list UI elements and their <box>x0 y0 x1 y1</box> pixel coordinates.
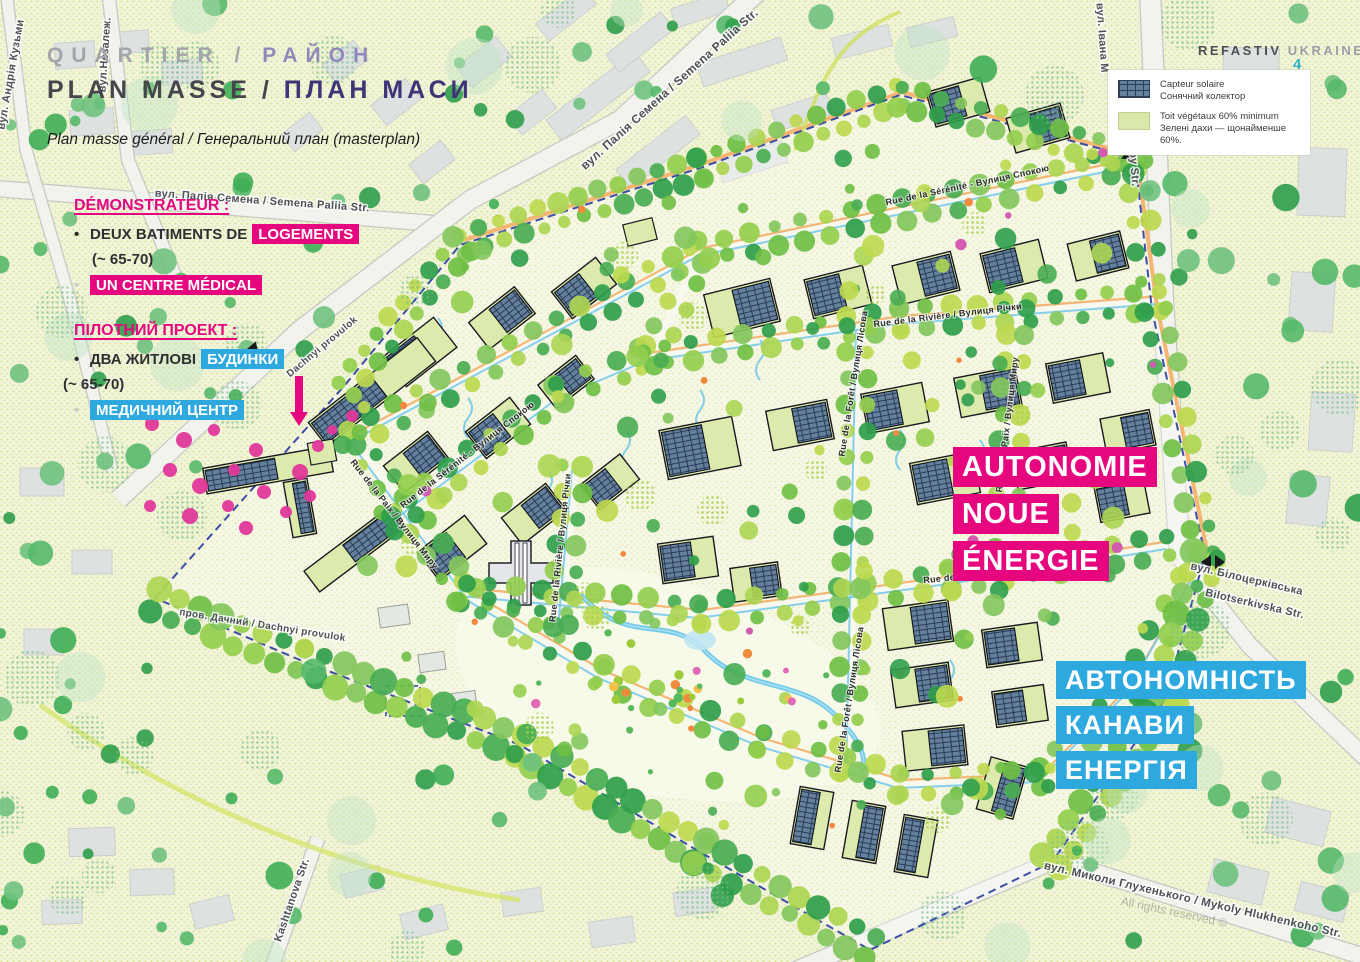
tree <box>768 235 789 256</box>
highlight-logements: LOGEMENTS <box>252 224 359 244</box>
planting-dot <box>609 682 619 692</box>
tree <box>684 335 698 349</box>
flowering-tree <box>192 478 208 494</box>
tree <box>647 519 660 532</box>
tree <box>418 908 433 923</box>
page-title: PLAN MASSE / ПЛАН МАСИ <box>47 76 473 105</box>
tree <box>1041 779 1055 793</box>
tree <box>740 884 761 905</box>
planting-dot <box>823 672 829 678</box>
flowering-tree <box>312 440 324 452</box>
tree <box>419 394 437 412</box>
tree <box>446 939 462 955</box>
bullet-icon: • <box>74 277 90 294</box>
tree <box>744 785 767 808</box>
tree <box>1105 358 1114 367</box>
tree <box>673 174 695 196</box>
tree <box>921 786 936 801</box>
tree <box>1073 126 1086 139</box>
tree-canopy <box>4 650 61 707</box>
tree <box>999 188 1020 209</box>
tree-canopy <box>894 25 950 81</box>
planting-dot <box>604 629 611 636</box>
tree <box>750 611 764 625</box>
building <box>992 685 1049 728</box>
tree <box>833 525 854 546</box>
masterplan-page: вул. Палія Семена / Semena Paliia Str.ву… <box>0 0 1360 962</box>
tree <box>1161 326 1179 344</box>
tree-canopy <box>48 877 86 915</box>
tree <box>549 311 565 327</box>
tree <box>386 696 408 718</box>
tree-canopy <box>78 437 133 492</box>
tree <box>1135 276 1147 288</box>
tree <box>1047 159 1065 177</box>
tree <box>649 680 665 696</box>
tree <box>569 566 583 580</box>
legend-item-green-roof: Toit végétaux 60% minimumЗелені дахи — щ… <box>1118 111 1300 147</box>
tree <box>474 460 489 475</box>
tree <box>534 605 547 618</box>
tree <box>538 222 550 234</box>
tree <box>799 582 809 592</box>
tree <box>1007 130 1023 146</box>
tree <box>1048 144 1060 156</box>
tree <box>851 199 862 210</box>
tree <box>1092 132 1105 145</box>
tree <box>847 762 868 783</box>
tree <box>1243 373 1269 399</box>
solar-panel-swatch-icon <box>1118 80 1150 98</box>
tree <box>955 379 966 390</box>
tree <box>572 483 592 503</box>
tree <box>737 344 753 360</box>
tree <box>3 512 15 524</box>
tree <box>1151 242 1166 257</box>
callout-line: NOUE <box>953 494 1059 534</box>
tree <box>508 636 519 647</box>
tree <box>1011 107 1031 127</box>
tree <box>965 632 974 641</box>
tree-canopy <box>240 729 281 770</box>
tree <box>933 91 949 107</box>
tree <box>370 424 390 444</box>
tree <box>966 119 985 138</box>
tree <box>726 400 743 417</box>
tree <box>370 668 397 695</box>
tree <box>837 476 852 491</box>
tree <box>1267 273 1280 286</box>
tree <box>961 393 974 406</box>
demonstrator-item-1: • DEUX BATIMENTS DE LOGEMENTS <box>74 224 359 244</box>
tree <box>492 492 512 512</box>
tree <box>14 726 28 740</box>
context-building <box>501 887 544 916</box>
tree <box>716 162 729 175</box>
tree <box>488 365 503 380</box>
tree <box>1327 79 1347 99</box>
tree <box>33 242 47 256</box>
tree <box>146 576 172 602</box>
solar-panel <box>792 402 832 443</box>
tree <box>378 307 397 326</box>
tree <box>768 121 785 138</box>
tree <box>832 631 851 650</box>
tree <box>594 284 611 301</box>
flowering-tree <box>1150 361 1156 367</box>
tree <box>694 721 711 738</box>
tree-canopy <box>962 212 987 237</box>
tree <box>913 582 934 603</box>
tree <box>976 196 992 212</box>
flowering-tree <box>144 500 156 512</box>
tree-canopy <box>115 737 153 775</box>
tree <box>626 345 648 367</box>
title-fr: PLAN MASSE / <box>47 76 284 104</box>
tree <box>1004 782 1020 798</box>
tree <box>883 569 903 589</box>
tree <box>394 320 414 340</box>
solar-panel <box>984 628 1019 665</box>
tree <box>435 487 452 504</box>
highlight-centre-medical: UN CENTRE MÉDICAL <box>90 275 262 295</box>
tree <box>436 573 448 585</box>
tree <box>645 317 662 334</box>
tree <box>995 228 1017 250</box>
flowering-tree <box>304 490 316 502</box>
tree <box>579 364 592 377</box>
tree <box>613 266 630 283</box>
tree <box>834 150 851 167</box>
tree-canopy <box>67 713 104 750</box>
pilot-item-2: (~ 65-70) <box>63 376 284 393</box>
tree <box>776 588 789 601</box>
tree <box>829 657 850 678</box>
tree <box>1312 259 1339 286</box>
tree <box>733 324 753 344</box>
tree <box>955 97 967 109</box>
tree <box>1045 763 1056 774</box>
tree <box>756 149 771 164</box>
tree <box>776 752 794 770</box>
demonstrator-title: DÉMONSTRATEUR : <box>74 197 229 215</box>
tree <box>856 476 870 490</box>
tree <box>1174 381 1192 399</box>
shed <box>378 604 410 628</box>
demonstrator-block: DÉMONSTRATEUR : • DEUX BATIMENTS DE LOGE… <box>74 197 359 302</box>
tree <box>267 769 283 785</box>
flowering-tree <box>222 500 234 512</box>
kicker-uk: РАЙОН <box>262 44 376 67</box>
flowering-tree <box>280 506 292 518</box>
tree <box>794 231 815 252</box>
planting-dot <box>626 727 633 734</box>
tree <box>1014 325 1034 345</box>
tree-canopy <box>804 458 827 481</box>
tree-canopy <box>925 807 951 833</box>
tree <box>1125 932 1142 949</box>
tree <box>661 195 676 210</box>
pilot-block: ПІЛОТНИЙ ПРОЕКТ : • ДВА ЖИТЛОВІ БУДИНКИ … <box>74 322 284 427</box>
tree <box>570 512 585 527</box>
tree <box>597 204 611 218</box>
tree <box>817 337 830 350</box>
tree <box>457 361 471 375</box>
tree <box>653 352 669 368</box>
tree <box>493 616 515 638</box>
tree <box>858 369 877 388</box>
building <box>982 622 1043 667</box>
tree <box>717 589 736 608</box>
title-block: QUARTIER / РАЙОН PLAN MASSE / ПЛАН МАСИ … <box>47 44 473 149</box>
tree <box>683 350 704 371</box>
building <box>882 600 953 651</box>
tree <box>467 731 485 749</box>
tree <box>710 145 722 157</box>
tree <box>793 615 804 626</box>
tree <box>996 324 1017 345</box>
tree <box>1086 148 1098 160</box>
tree <box>1159 529 1174 544</box>
tree <box>906 101 927 122</box>
tree <box>691 614 711 634</box>
tree <box>852 605 871 624</box>
tree <box>862 235 884 257</box>
tree <box>590 676 602 688</box>
tree <box>1105 157 1120 172</box>
tree-canopy <box>1239 793 1293 847</box>
tree <box>670 605 688 623</box>
tree <box>243 643 265 665</box>
tree <box>845 184 855 194</box>
tree <box>637 587 659 609</box>
planting-dot <box>648 769 653 774</box>
tree <box>1053 181 1067 195</box>
tree-canopy <box>524 712 554 742</box>
tree <box>470 219 487 236</box>
tree <box>1337 669 1353 685</box>
tree <box>162 611 180 629</box>
tree <box>772 788 780 796</box>
tree <box>667 20 678 31</box>
tree <box>467 700 484 717</box>
tree <box>472 240 492 260</box>
tree <box>715 230 733 248</box>
tree <box>840 502 853 515</box>
tree <box>413 184 430 201</box>
tree <box>1152 383 1174 405</box>
bullet-icon: • <box>74 351 90 368</box>
solar-panel <box>1048 360 1086 400</box>
tree <box>604 247 619 262</box>
tree <box>10 364 29 383</box>
shrub <box>701 377 708 384</box>
tree <box>265 862 293 890</box>
tree <box>762 324 776 338</box>
tree <box>401 652 411 662</box>
tree <box>571 456 593 478</box>
tree <box>868 85 886 103</box>
tree <box>558 216 570 228</box>
tree <box>301 659 326 684</box>
tree <box>514 223 535 244</box>
tree <box>994 104 1008 118</box>
tree <box>642 260 655 273</box>
tree <box>356 369 375 388</box>
shed <box>418 651 446 672</box>
tree <box>385 340 399 354</box>
tree <box>650 277 666 293</box>
shrub <box>893 430 899 436</box>
tree <box>1152 284 1167 299</box>
tree <box>986 121 1005 140</box>
flowering-tree <box>182 508 198 524</box>
flowering-tree <box>746 628 753 635</box>
tree <box>357 555 378 576</box>
flowering-tree <box>1098 148 1107 157</box>
tree <box>1177 407 1197 427</box>
tree <box>496 231 512 247</box>
tree <box>588 180 606 198</box>
planting-dot <box>674 670 683 679</box>
tree <box>916 428 935 447</box>
page-kicker: QUARTIER / РАЙОН <box>47 44 473 68</box>
tree <box>974 101 988 115</box>
tree <box>573 98 585 110</box>
tree <box>528 782 547 801</box>
tree <box>971 316 985 330</box>
callout-autonomie: AUTONOMIE NOUE ÉNERGIE <box>953 447 1157 588</box>
planting-dot <box>621 688 630 697</box>
tree <box>793 132 813 152</box>
tree-canopy <box>327 852 372 897</box>
flowering-tree <box>228 464 240 476</box>
planting-dot <box>627 639 636 648</box>
tree <box>650 163 665 178</box>
demonstrator-item-2: (~ 65-70) <box>92 251 359 268</box>
tree <box>565 535 586 556</box>
tree <box>816 81 830 95</box>
tree <box>413 687 434 708</box>
shrub <box>471 619 477 625</box>
tree <box>571 758 589 776</box>
tree <box>620 788 646 814</box>
tree <box>1187 229 1198 240</box>
tree-canopy <box>866 284 886 304</box>
tree <box>511 351 526 366</box>
highlight-budynky: БУДИНКИ <box>201 349 284 369</box>
tree <box>739 222 760 243</box>
tree <box>782 484 798 500</box>
tree <box>537 343 550 356</box>
shrub <box>956 358 961 363</box>
shrub <box>829 823 835 829</box>
tree <box>523 753 542 772</box>
tree <box>1177 249 1200 272</box>
tree <box>628 292 644 308</box>
tree <box>1289 470 1316 497</box>
tree <box>50 627 76 653</box>
tree <box>747 505 760 518</box>
tree <box>836 120 852 136</box>
tree <box>949 767 961 779</box>
tree <box>1076 311 1089 324</box>
tree <box>855 527 874 546</box>
tree <box>718 610 740 632</box>
planting-dot <box>676 687 683 694</box>
tree <box>28 540 53 565</box>
tree <box>233 172 253 192</box>
tree <box>566 661 579 674</box>
tree <box>494 442 508 456</box>
tree <box>529 199 546 216</box>
planting-dot <box>612 695 621 704</box>
tree <box>852 500 872 520</box>
tree <box>1143 331 1159 347</box>
tree <box>689 595 708 614</box>
tree <box>447 721 466 740</box>
tree <box>1213 861 1239 887</box>
tree <box>730 713 746 729</box>
tree <box>859 397 875 413</box>
tree <box>1078 176 1094 192</box>
planting-dot <box>743 649 752 658</box>
tree <box>694 168 714 188</box>
tree <box>346 387 362 403</box>
tree <box>662 246 684 268</box>
planting-dot <box>788 697 796 705</box>
tree <box>180 931 194 945</box>
tree <box>631 819 651 839</box>
building <box>657 536 718 583</box>
tree <box>1050 311 1064 325</box>
tree <box>890 764 908 782</box>
solar-panel <box>1121 412 1154 448</box>
tree <box>334 436 352 454</box>
tree <box>929 106 945 122</box>
tree <box>628 168 646 186</box>
flowering-tree <box>1005 212 1011 218</box>
tree <box>1140 210 1161 231</box>
tree <box>152 848 167 863</box>
planting-dot <box>688 725 694 731</box>
tree-canopy <box>1084 817 1131 864</box>
tree-canopy <box>505 37 561 93</box>
tree <box>1174 492 1195 513</box>
tree <box>1017 381 1032 396</box>
tree <box>756 726 769 739</box>
tree-canopy <box>1171 599 1230 658</box>
tree <box>992 356 1007 371</box>
tree <box>1000 159 1011 170</box>
tree <box>395 678 414 697</box>
tree <box>855 562 873 580</box>
tree <box>482 591 497 606</box>
kicker-fr: QUARTIER <box>47 44 221 67</box>
planting-dot <box>669 699 677 707</box>
tree <box>962 779 980 797</box>
shrub <box>578 206 586 214</box>
tree <box>1026 184 1044 202</box>
callout-line: КАНАВИ <box>1056 706 1194 744</box>
tree <box>1103 307 1115 319</box>
tree <box>1182 434 1202 454</box>
tree <box>441 389 460 408</box>
tree <box>806 895 830 919</box>
page-subtitle: Plan masse général / Генеральний план (m… <box>47 131 473 149</box>
tree <box>528 617 544 633</box>
legend-item-solar: Capteur solaireСонячний колектор <box>1118 79 1300 103</box>
